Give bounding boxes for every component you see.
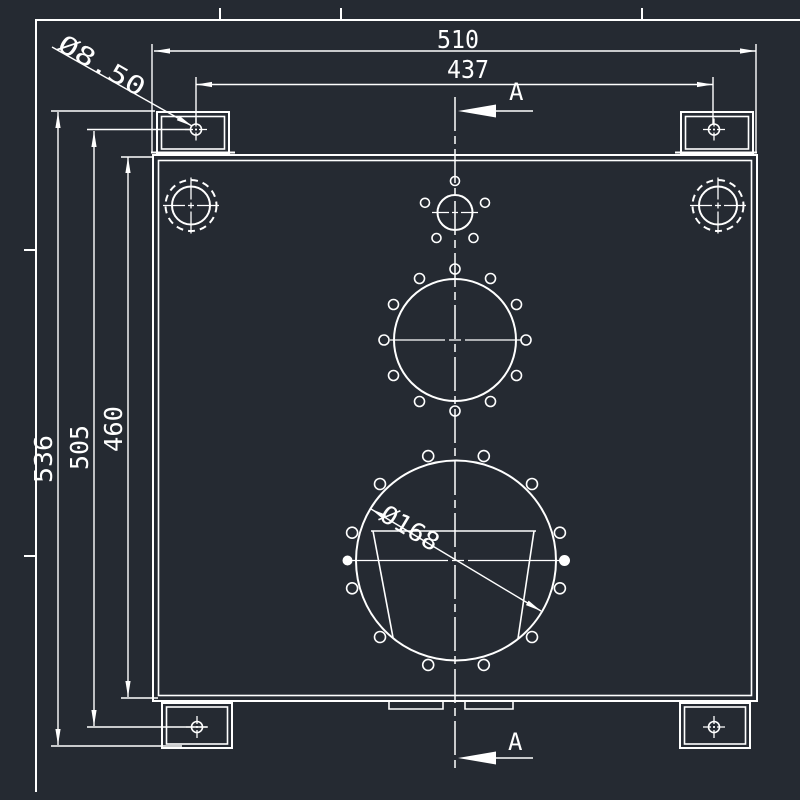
bolt-hole — [486, 274, 496, 284]
bolt-hole — [347, 583, 358, 594]
arrowhead — [91, 710, 96, 726]
arrowhead — [697, 82, 713, 87]
technical-drawing: 510 437 536 505 460 — [0, 0, 800, 800]
dim-tab-hole-label: Ø8.50 — [53, 29, 151, 102]
dimension-body-height: 460 — [99, 157, 158, 698]
dim-536-label: 536 — [29, 435, 58, 483]
arrowhead — [125, 681, 130, 697]
bolt-hole — [379, 335, 389, 345]
threaded-hole-top-right — [690, 178, 746, 234]
section-arrowhead — [458, 752, 496, 765]
bolt-hole — [554, 527, 565, 538]
flange-left — [389, 701, 443, 709]
inner-bracket — [371, 531, 536, 639]
arrowhead — [196, 82, 212, 87]
bottom-flanges — [389, 701, 513, 709]
section-arrowhead — [458, 105, 496, 118]
mounting-tab-top-right — [675, 112, 757, 153]
bolt-hole — [527, 632, 538, 643]
dim-505-label: 505 — [65, 425, 94, 470]
arrowhead — [55, 729, 60, 745]
tab-outer — [680, 703, 750, 748]
arrowhead — [740, 48, 756, 53]
arrowhead — [125, 157, 130, 173]
dim-168-label: Ø168 — [375, 499, 445, 557]
bolt-hole — [375, 479, 386, 490]
bracket-right-edge — [518, 531, 534, 639]
bolt-hole — [421, 198, 430, 207]
arrowhead — [154, 48, 170, 53]
bolt-hole — [478, 451, 489, 462]
bolt-hole-filled — [559, 555, 570, 566]
tab-inner — [167, 707, 228, 744]
tab-inner — [685, 707, 746, 744]
dim-460-label: 460 — [99, 406, 128, 452]
arrowhead — [177, 116, 192, 126]
dim-437-label: 437 — [447, 55, 489, 84]
dim-510-label: 510 — [437, 25, 479, 54]
bolt-hole — [481, 198, 490, 207]
bolt-hole — [527, 479, 538, 490]
bolt-hole — [423, 451, 434, 462]
bolt-hole — [375, 632, 386, 643]
dimension-overall-width: 510 — [152, 25, 756, 153]
mounting-tab-bottom-right — [680, 703, 750, 748]
bolt-hole — [512, 300, 522, 310]
bolt-hole — [478, 659, 489, 670]
threaded-hole-top-left — [163, 178, 219, 234]
dimension-mount-hole-span-height: 505 — [65, 130, 207, 728]
mounting-tab-top-left — [151, 112, 235, 153]
bolt-hole — [432, 234, 441, 243]
arrowhead — [526, 601, 541, 611]
tab-inner — [686, 117, 749, 150]
section-marker-bottom: A — [458, 728, 533, 765]
arrowhead — [55, 112, 60, 128]
section-label-top: A — [509, 78, 524, 106]
bolt-hole — [389, 371, 399, 381]
tab-outer — [157, 112, 229, 153]
bolt-hole-filled — [343, 556, 353, 566]
bolt-hole — [486, 397, 496, 407]
mounting-tab-bottom-left — [162, 703, 232, 748]
tab-outer — [681, 112, 753, 153]
tab-inner — [162, 117, 225, 150]
bolt-hole — [347, 527, 358, 538]
section-label-bottom: A — [508, 728, 523, 756]
bolt-hole — [389, 300, 399, 310]
bolt-hole — [423, 659, 434, 670]
cad-canvas: 510 437 536 505 460 — [0, 0, 800, 800]
bolt-hole — [512, 371, 522, 381]
bolt-hole — [521, 335, 531, 345]
bolt-hole — [469, 234, 478, 243]
bolt-hole — [554, 583, 565, 594]
tab-outer — [162, 703, 232, 748]
bolt-hole — [415, 397, 425, 407]
arrowhead — [91, 131, 96, 147]
bolt-hole — [415, 274, 425, 284]
sheet-border — [24, 8, 800, 792]
flange-right — [465, 701, 513, 709]
dimension-large-port-diameter: Ø168 — [371, 499, 541, 611]
